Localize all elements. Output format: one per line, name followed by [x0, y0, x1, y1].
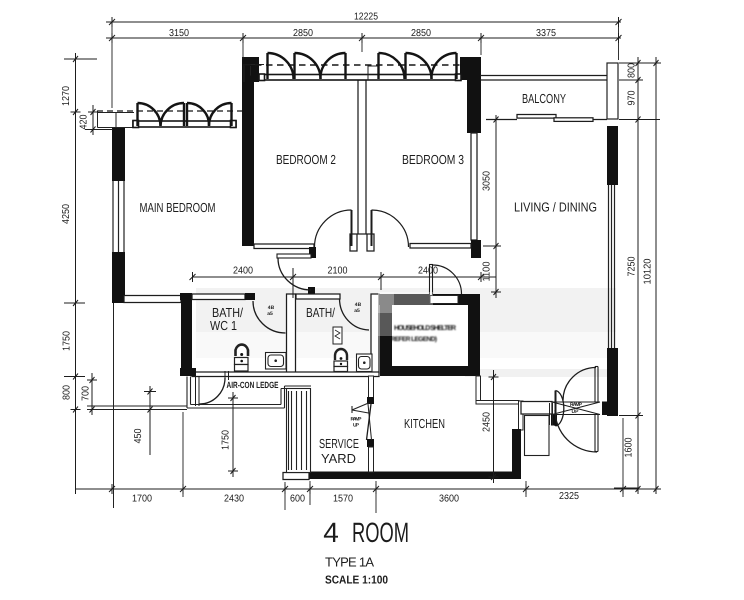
svg-text:1570: 1570	[333, 494, 353, 505]
svg-text:BATH/: BATH/	[306, 305, 335, 320]
svg-text:SCALE 1:100: SCALE 1:100	[325, 575, 388, 587]
svg-text:1600: 1600	[624, 437, 635, 457]
svg-text:4250: 4250	[61, 204, 72, 224]
svg-text:3150: 3150	[169, 28, 189, 39]
svg-text:970: 970	[627, 90, 638, 105]
svg-text:BEDROOM 3: BEDROOM 3	[402, 152, 464, 167]
svg-text:1100: 1100	[482, 261, 493, 281]
svg-text:2450: 2450	[482, 412, 493, 432]
svg-text:2430: 2430	[224, 494, 244, 505]
svg-text:UP: UP	[572, 409, 580, 415]
svg-text:3050: 3050	[482, 171, 493, 191]
svg-text:600: 600	[290, 494, 305, 505]
svg-text:AIR-CON LEDGE: AIR-CON LEDGE	[227, 380, 279, 390]
svg-text:700: 700	[81, 386, 92, 401]
svg-text:WC 1: WC 1	[210, 318, 237, 333]
svg-text:450: 450	[133, 428, 144, 443]
svg-text:2400: 2400	[418, 266, 438, 277]
svg-text:7250: 7250	[627, 256, 638, 276]
svg-text:2850: 2850	[411, 28, 431, 39]
svg-text:4: 4	[323, 517, 339, 548]
svg-text:3600: 3600	[439, 494, 459, 505]
svg-text:YARD: YARD	[321, 451, 356, 466]
svg-text:1700: 1700	[132, 494, 152, 505]
svg-text:a5: a5	[354, 308, 360, 314]
svg-text:10120: 10120	[643, 258, 654, 284]
svg-text:800: 800	[62, 385, 73, 400]
svg-text:1750: 1750	[62, 331, 73, 351]
svg-text:BEDROOM 2: BEDROOM 2	[276, 152, 336, 167]
svg-text:2400: 2400	[233, 266, 253, 277]
svg-text:(REFER LEGEND): (REFER LEGEND)	[389, 336, 437, 343]
svg-text:HOUSEHOLD SHELTER: HOUSEHOLD SHELTER	[394, 325, 456, 332]
svg-text:TYPE 1A: TYPE 1A	[325, 555, 375, 570]
svg-text:12225: 12225	[354, 12, 378, 23]
svg-text:2850: 2850	[293, 28, 313, 39]
svg-text:LIVING / DINING: LIVING / DINING	[514, 200, 597, 215]
svg-text:800: 800	[627, 63, 638, 78]
svg-text:3375: 3375	[536, 28, 556, 39]
svg-text:2100: 2100	[328, 266, 348, 277]
svg-text:1750: 1750	[221, 430, 232, 450]
svg-text:SERVICE: SERVICE	[319, 436, 359, 451]
svg-text:420: 420	[79, 114, 90, 129]
svg-text:ROOM: ROOM	[352, 517, 409, 548]
svg-text:a5: a5	[267, 311, 273, 317]
svg-text:BALCONY: BALCONY	[522, 91, 566, 106]
svg-text:RAMP: RAMP	[570, 402, 583, 408]
svg-text:MAIN BEDROOM: MAIN BEDROOM	[140, 200, 216, 215]
svg-text:2325: 2325	[559, 491, 579, 502]
svg-text:KITCHEN: KITCHEN	[404, 416, 445, 431]
svg-text:1270: 1270	[61, 86, 72, 106]
svg-text:UP: UP	[353, 423, 360, 429]
